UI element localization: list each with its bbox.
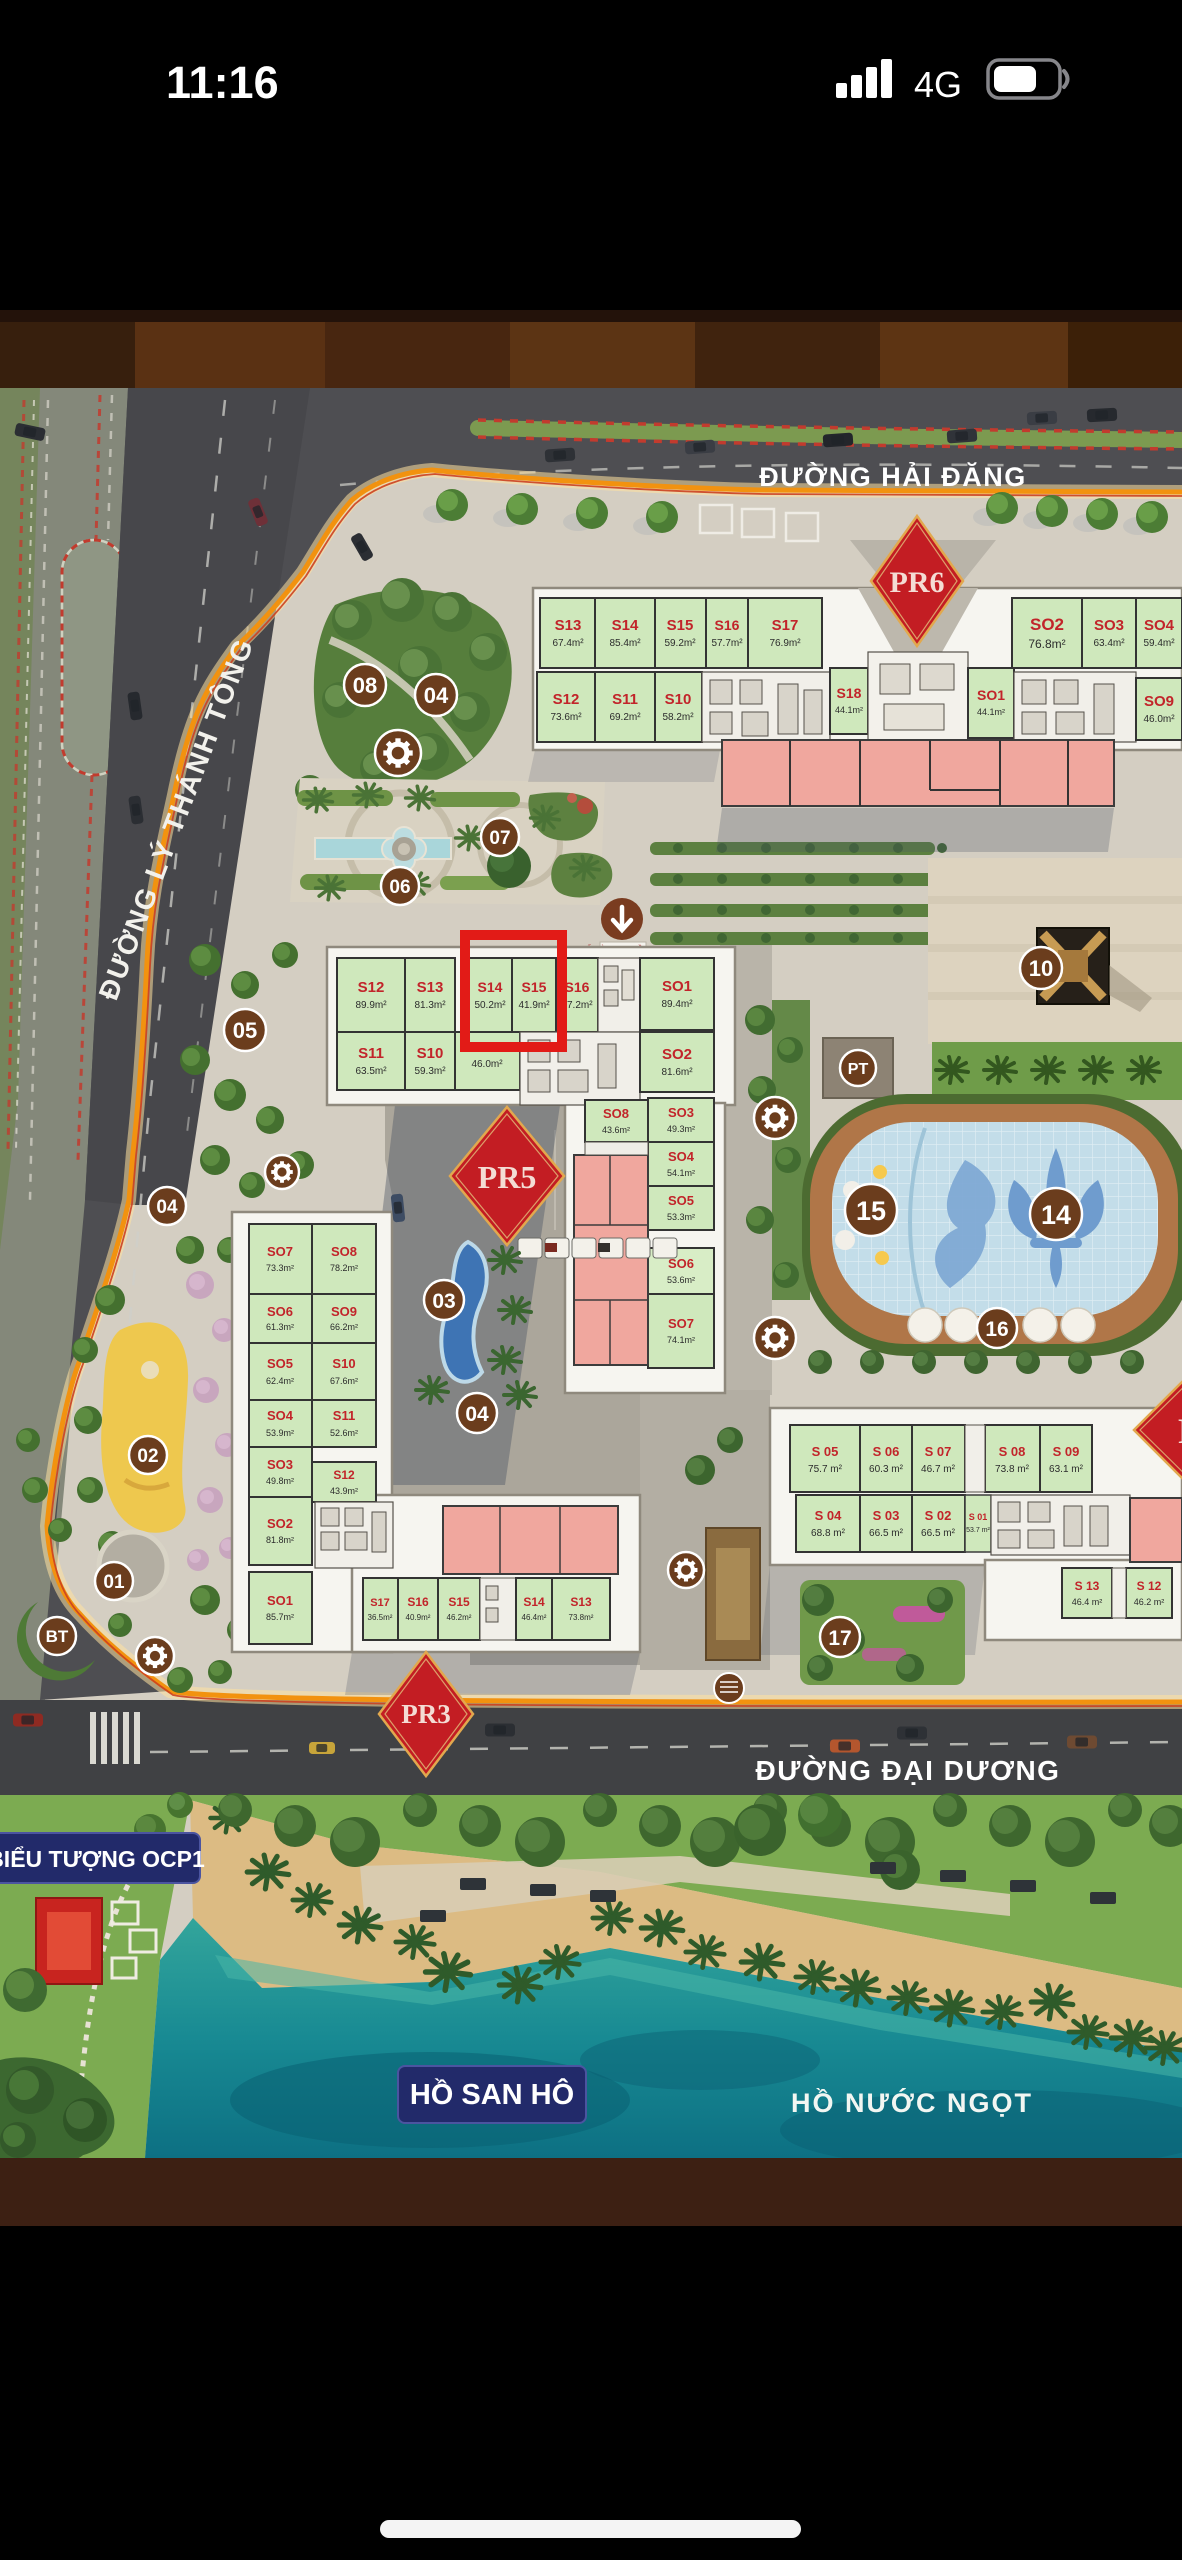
svg-text:PT: PT: [848, 1061, 869, 1078]
svg-text:46.0m²: 46.0m²: [471, 1059, 503, 1070]
svg-text:S 07: S 07: [925, 1444, 952, 1459]
svg-text:SO9: SO9: [1144, 693, 1174, 710]
svg-text:74.1m²: 74.1m²: [667, 1335, 695, 1345]
svg-text:61.3m²: 61.3m²: [266, 1322, 294, 1332]
svg-text:58.2m²: 58.2m²: [662, 712, 694, 723]
svg-text:S13: S13: [570, 1595, 592, 1609]
svg-text:59.3m²: 59.3m²: [414, 1066, 446, 1077]
svg-text:78.2m²: 78.2m²: [330, 1263, 358, 1273]
svg-text:SO7: SO7: [267, 1244, 293, 1259]
svg-text:SO1: SO1: [662, 978, 692, 995]
svg-text:S16: S16: [407, 1595, 429, 1609]
svg-text:63.4m²: 63.4m²: [1093, 638, 1125, 649]
svg-text:HỒ NƯỚC NGỌT: HỒ NƯỚC NGỌT: [791, 2087, 1033, 2118]
svg-text:SO3: SO3: [668, 1105, 694, 1120]
svg-text:SO1: SO1: [267, 1593, 293, 1608]
svg-text:53.3m²: 53.3m²: [667, 1212, 695, 1222]
svg-text:S 08: S 08: [999, 1444, 1026, 1459]
svg-text:S12: S12: [553, 691, 580, 708]
svg-text:SO4: SO4: [668, 1149, 695, 1164]
svg-text:73.8 m²: 73.8 m²: [995, 1464, 1030, 1475]
svg-text:SO9: SO9: [331, 1304, 357, 1319]
svg-text:PR6: PR6: [890, 566, 945, 599]
svg-text:67.6m²: 67.6m²: [330, 1376, 358, 1386]
svg-text:S 12: S 12: [1137, 1579, 1162, 1593]
svg-text:PR5: PR5: [478, 1159, 537, 1195]
svg-text:81.3m²: 81.3m²: [414, 1000, 446, 1011]
svg-text:S 13: S 13: [1075, 1579, 1100, 1593]
svg-text:S 05: S 05: [812, 1444, 839, 1459]
svg-text:85.4m²: 85.4m²: [609, 638, 641, 649]
svg-text:S 02: S 02: [925, 1508, 952, 1523]
svg-text:44.1m²: 44.1m²: [835, 705, 863, 715]
svg-text:04: 04: [424, 683, 449, 708]
svg-text:S15: S15: [448, 1595, 470, 1609]
svg-text:76.8m²: 76.8m²: [1028, 637, 1065, 651]
svg-text:53.6m²: 53.6m²: [667, 1275, 695, 1285]
svg-text:05: 05: [233, 1018, 257, 1043]
svg-text:SO6: SO6: [267, 1304, 293, 1319]
svg-text:57.7m²: 57.7m²: [711, 638, 743, 649]
svg-text:SO3: SO3: [1094, 617, 1124, 634]
svg-text:07: 07: [489, 828, 510, 849]
svg-text:4G: 4G: [914, 64, 962, 105]
svg-text:S 06: S 06: [873, 1444, 900, 1459]
svg-text:S11: S11: [333, 1408, 355, 1423]
svg-text:PR3: PR3: [401, 1699, 451, 1729]
svg-text:SO4: SO4: [267, 1408, 294, 1423]
svg-text:SO1: SO1: [977, 687, 1005, 703]
svg-text:53.7 m²: 53.7 m²: [966, 1527, 990, 1534]
svg-text:17: 17: [828, 1627, 851, 1650]
svg-text:46.2m²: 46.2m²: [447, 1613, 472, 1622]
svg-text:81.6m²: 81.6m²: [661, 1067, 693, 1078]
svg-text:41.9m²: 41.9m²: [518, 1000, 550, 1011]
svg-text:S14: S14: [523, 1595, 545, 1609]
svg-text:04: 04: [156, 1197, 178, 1218]
svg-text:BIỂU TƯỢNG OCP1: BIỂU TƯỢNG OCP1: [0, 1845, 205, 1872]
svg-text:89.4m²: 89.4m²: [661, 999, 693, 1010]
svg-text:73.6m²: 73.6m²: [550, 712, 582, 723]
svg-text:SO4: SO4: [1144, 617, 1175, 634]
svg-text:53.9m²: 53.9m²: [266, 1428, 294, 1438]
svg-text:73.3m²: 73.3m²: [266, 1263, 294, 1273]
svg-text:02: 02: [137, 1446, 158, 1467]
svg-text:46.2 m²: 46.2 m²: [1134, 1597, 1165, 1607]
svg-text:36.5m²: 36.5m²: [368, 1613, 393, 1622]
svg-text:S 09: S 09: [1053, 1444, 1080, 1459]
svg-text:50.2m²: 50.2m²: [474, 1000, 506, 1011]
svg-text:76.9m²: 76.9m²: [769, 638, 801, 649]
svg-text:63.1 m²: 63.1 m²: [1049, 1464, 1084, 1475]
svg-text:66.2m²: 66.2m²: [330, 1322, 358, 1332]
svg-text:S18: S18: [837, 685, 862, 701]
svg-text:S16: S16: [715, 617, 740, 633]
svg-text:46.4m²: 46.4m²: [522, 1613, 547, 1622]
svg-text:63.5m²: 63.5m²: [355, 1066, 387, 1077]
svg-text:43.6m²: 43.6m²: [602, 1125, 630, 1135]
svg-text:60.3 m²: 60.3 m²: [869, 1464, 904, 1475]
svg-text:69.2m²: 69.2m²: [609, 712, 641, 723]
svg-text:PR: PR: [1178, 1411, 1182, 1451]
svg-text:S15: S15: [522, 979, 547, 995]
svg-text:S15: S15: [667, 617, 694, 634]
svg-text:S10: S10: [417, 1045, 444, 1062]
svg-text:SO8: SO8: [331, 1244, 357, 1259]
svg-text:67.4m²: 67.4m²: [552, 638, 584, 649]
svg-text:10: 10: [1029, 956, 1053, 981]
svg-text:S17: S17: [772, 617, 799, 634]
svg-text:08: 08: [353, 673, 377, 698]
svg-text:S 04: S 04: [815, 1508, 843, 1523]
svg-text:46.7 m²: 46.7 m²: [921, 1464, 956, 1475]
svg-text:S 03: S 03: [873, 1508, 900, 1523]
svg-text:49.3m²: 49.3m²: [667, 1124, 695, 1134]
svg-text:11:16: 11:16: [166, 57, 279, 108]
svg-text:06: 06: [389, 877, 410, 898]
svg-text:HỒ SAN HÔ: HỒ SAN HÔ: [410, 2077, 574, 2111]
svg-text:S12: S12: [358, 979, 385, 996]
svg-text:S11: S11: [612, 691, 638, 708]
svg-text:16: 16: [985, 1318, 1008, 1341]
svg-text:S12: S12: [333, 1468, 355, 1482]
svg-text:46.4 m²: 46.4 m²: [1072, 1597, 1103, 1607]
svg-text:S 01: S 01: [969, 1512, 988, 1522]
svg-text:49.8m²: 49.8m²: [266, 1476, 294, 1486]
svg-text:40.9m²: 40.9m²: [406, 1613, 431, 1622]
svg-text:89.9m²: 89.9m²: [355, 1000, 387, 1011]
svg-text:44.1m²: 44.1m²: [977, 707, 1005, 717]
svg-text:S14: S14: [478, 979, 503, 995]
svg-text:S10: S10: [665, 691, 692, 708]
svg-text:85.7m²: 85.7m²: [266, 1612, 294, 1622]
svg-text:75.7 m²: 75.7 m²: [808, 1464, 843, 1475]
svg-text:52.6m²: 52.6m²: [330, 1428, 358, 1438]
svg-text:S17: S17: [370, 1597, 390, 1609]
svg-text:59.4m²: 59.4m²: [1143, 638, 1175, 649]
svg-text:S13: S13: [555, 617, 582, 634]
svg-text:ĐƯỜNG ĐẠI DƯƠNG: ĐƯỜNG ĐẠI DƯƠNG: [756, 1755, 1061, 1786]
svg-text:73.8m²: 73.8m²: [569, 1613, 594, 1622]
svg-text:ĐƯỜNG HẢI ĐĂNG: ĐƯỜNG HẢI ĐĂNG: [759, 460, 1026, 492]
svg-text:68.8 m²: 68.8 m²: [811, 1528, 846, 1539]
svg-text:66.5 m²: 66.5 m²: [869, 1528, 904, 1539]
svg-text:66.5 m²: 66.5 m²: [921, 1528, 956, 1539]
svg-text:SO7: SO7: [668, 1316, 694, 1331]
svg-text:54.1m²: 54.1m²: [667, 1168, 695, 1178]
svg-text:46.0m²: 46.0m²: [1143, 714, 1175, 725]
svg-text:SO5: SO5: [668, 1193, 694, 1208]
svg-text:SO2: SO2: [267, 1516, 293, 1531]
svg-text:62.4m²: 62.4m²: [266, 1376, 294, 1386]
svg-text:S13: S13: [417, 979, 444, 996]
svg-text:SO2: SO2: [662, 1046, 692, 1063]
svg-text:S16: S16: [565, 979, 590, 995]
svg-text:04: 04: [465, 1403, 489, 1426]
svg-text:SO2: SO2: [1030, 615, 1064, 634]
svg-text:14: 14: [1041, 1200, 1071, 1230]
svg-text:81.8m²: 81.8m²: [266, 1535, 294, 1545]
svg-text:S14: S14: [612, 617, 639, 634]
svg-text:43.9m²: 43.9m²: [330, 1486, 358, 1496]
svg-text:S11: S11: [358, 1045, 384, 1062]
svg-text:S10: S10: [332, 1356, 355, 1371]
svg-text:01: 01: [103, 1572, 125, 1593]
svg-text:03: 03: [432, 1290, 455, 1313]
svg-text:SO8: SO8: [603, 1106, 629, 1121]
svg-text:BT: BT: [46, 1627, 69, 1646]
svg-text:15: 15: [856, 1196, 886, 1226]
svg-text:59.2m²: 59.2m²: [664, 638, 696, 649]
svg-text:SO5: SO5: [267, 1356, 293, 1371]
svg-text:SO3: SO3: [267, 1457, 293, 1472]
